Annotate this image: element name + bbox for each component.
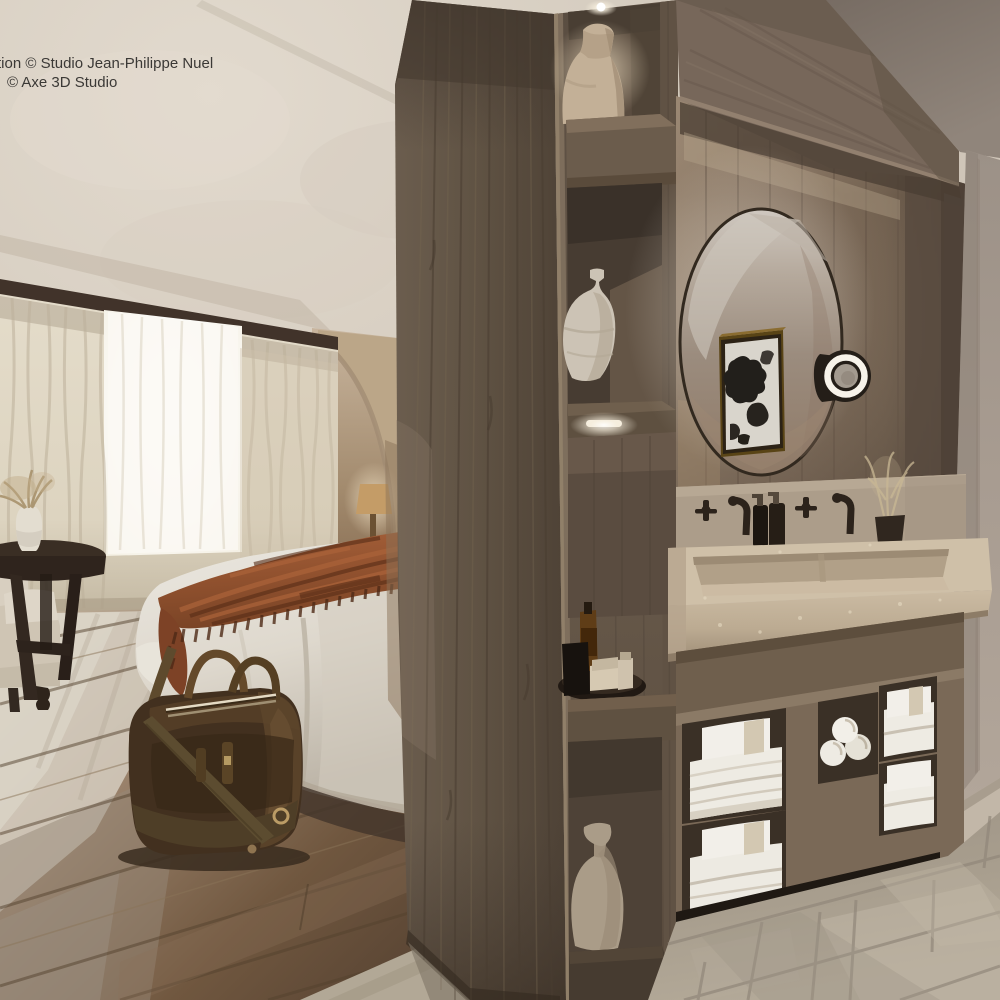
- svg-text:tion © Studio Jean-Philippe Nu: tion © Studio Jean-Philippe Nuel: [0, 55, 213, 72]
- svg-text:© Axe 3D Studio: © Axe 3D Studio: [7, 74, 117, 91]
